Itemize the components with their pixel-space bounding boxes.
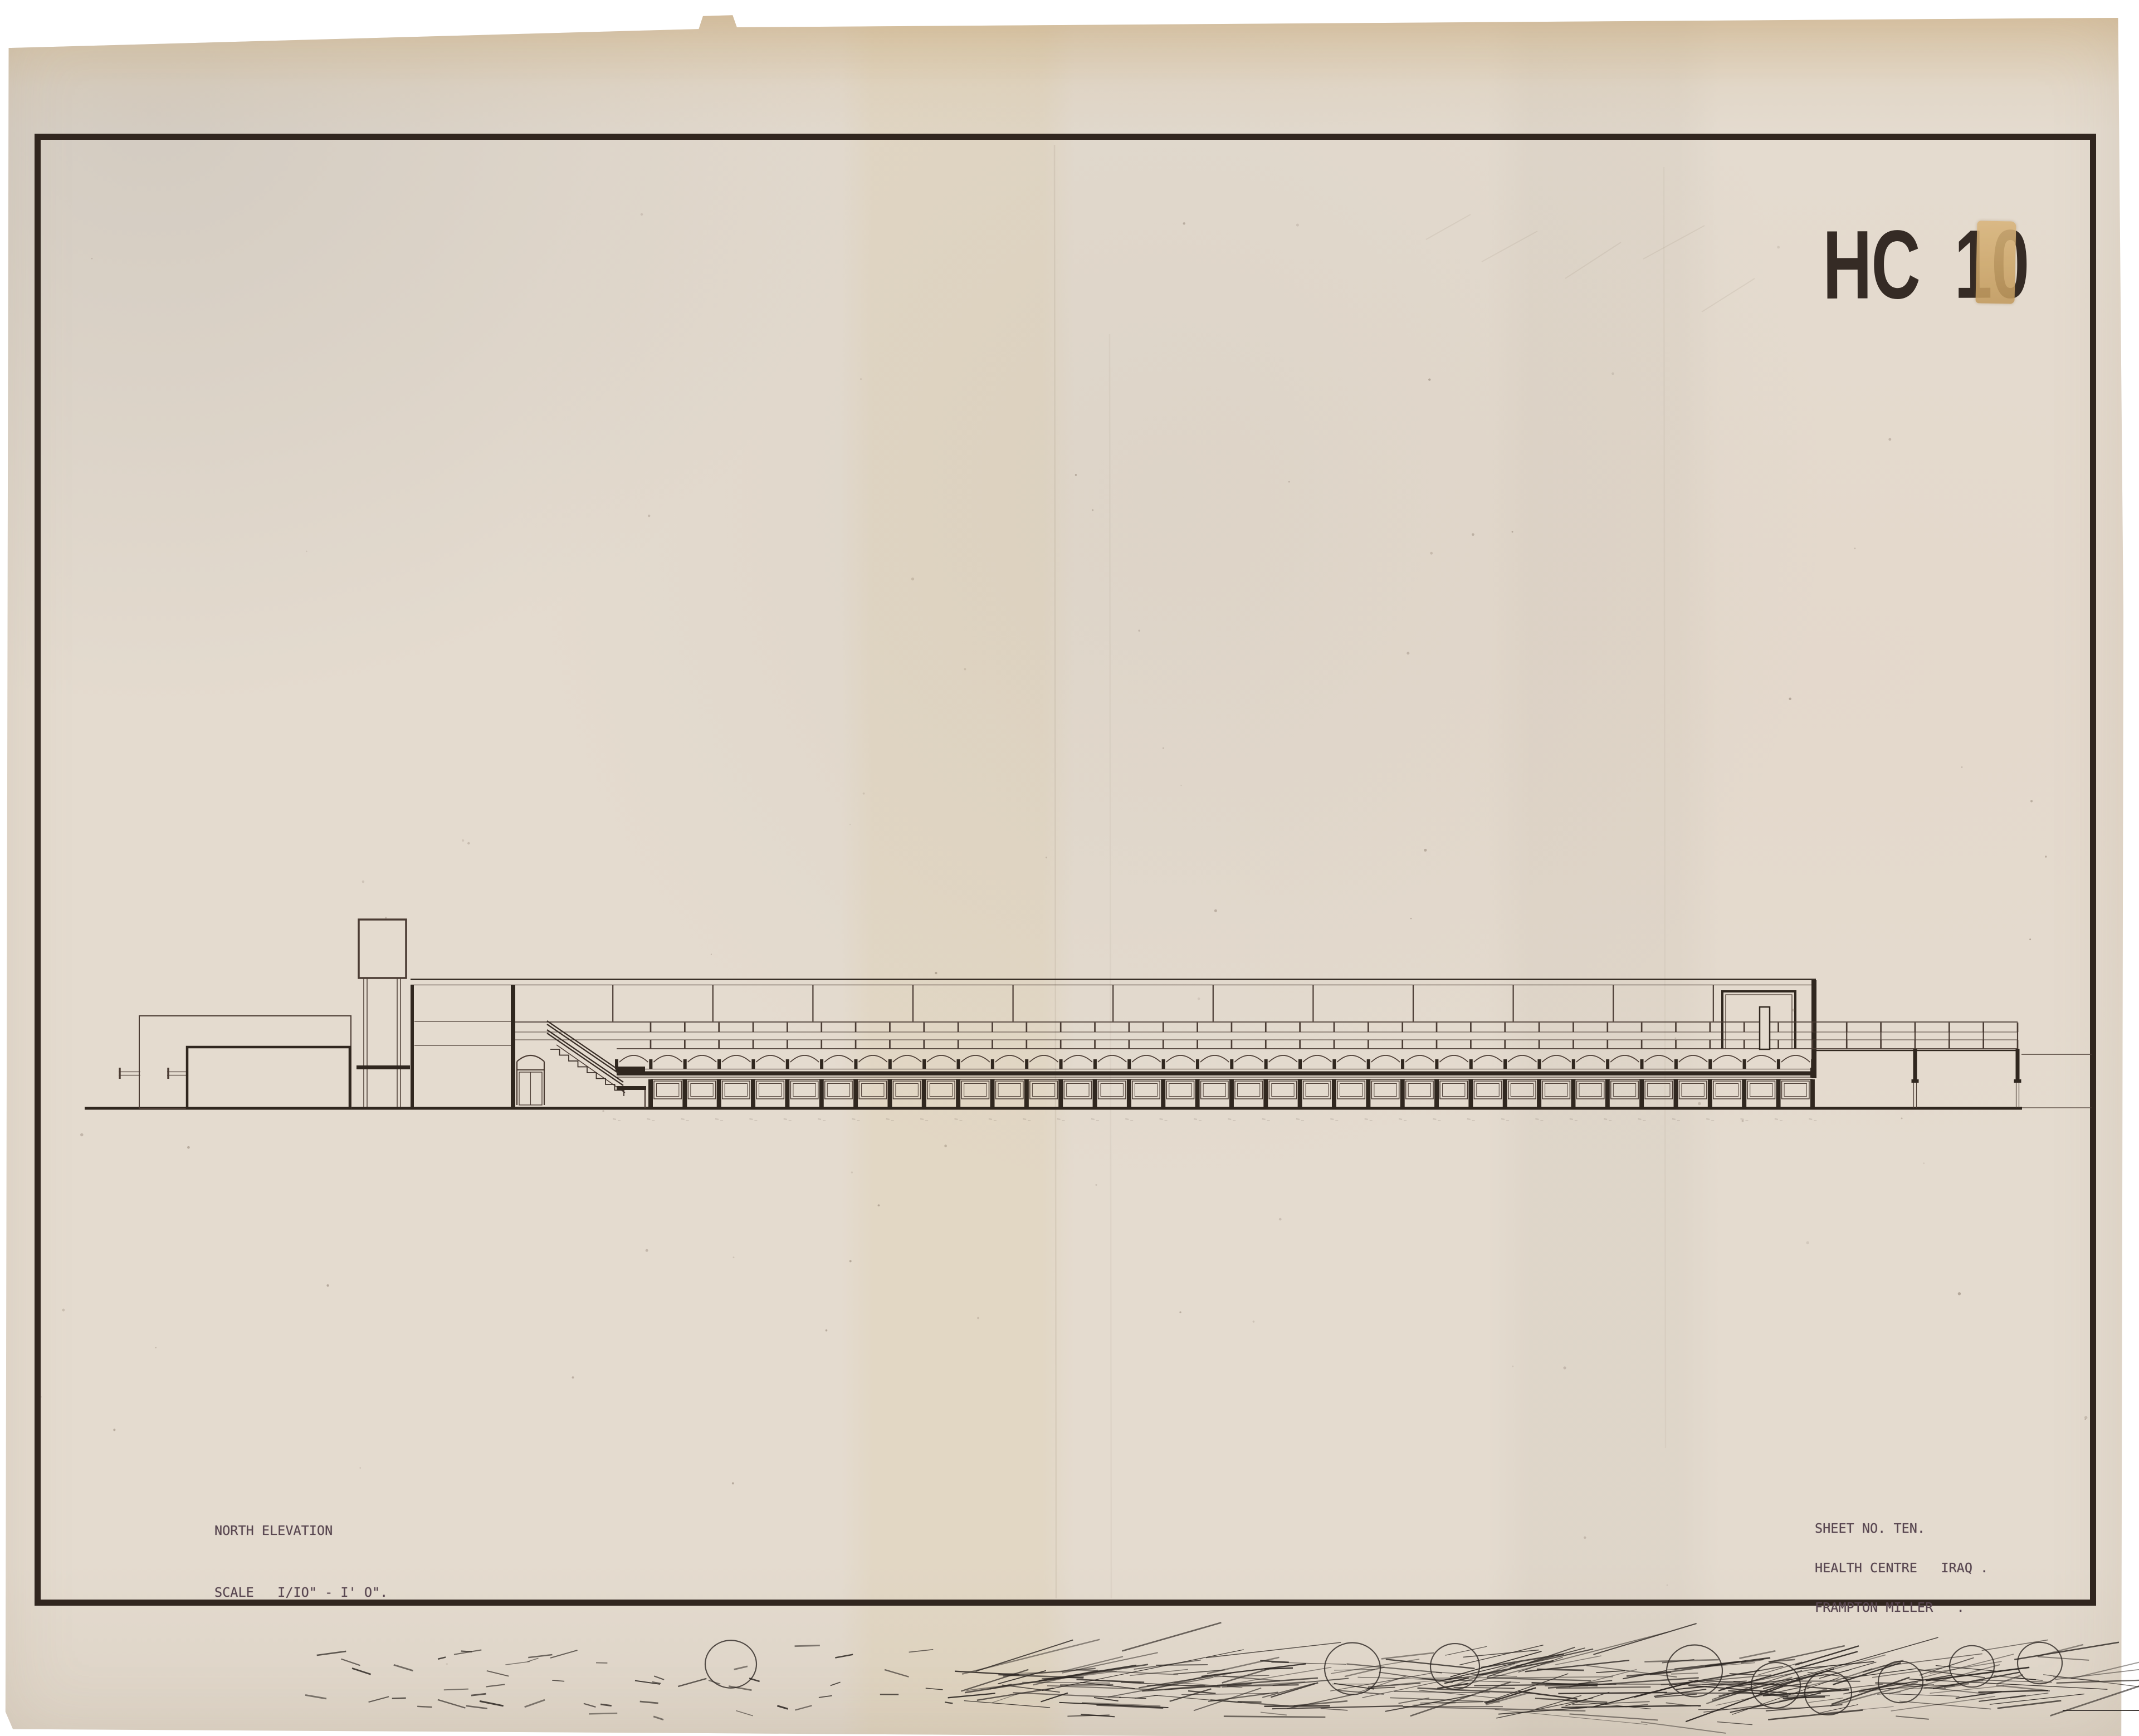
dust-specks bbox=[41, 213, 2087, 1665]
architect-name-line: FRAMPTON MILLER . bbox=[1815, 1601, 1988, 1615]
scanned-drawing-sheet: HC 10 NORTH ELEVATION SCALE I/IO" - I' O… bbox=[0, 0, 2139, 1736]
title-block-right: SHEET NO. TEN. HEALTH CENTRE IRAQ . FRAM… bbox=[1815, 1496, 1988, 1641]
paper-creases bbox=[1054, 145, 1755, 1598]
drawing-title: NORTH ELEVATION bbox=[214, 1520, 388, 1541]
title-block-left: NORTH ELEVATION SCALE I/IO" - I' O". bbox=[214, 1479, 388, 1644]
project-name-line: HEALTH CENTRE IRAQ . bbox=[1815, 1562, 1988, 1575]
setting-out-ticks bbox=[613, 1119, 1816, 1121]
tape-patch bbox=[1975, 221, 2016, 304]
elevation-drawing bbox=[0, 0, 2139, 1736]
sheet-number-line: SHEET NO. TEN. bbox=[1815, 1522, 1988, 1535]
drawing-scale: SCALE I/IO" - I' O". bbox=[214, 1582, 388, 1603]
north-elevation bbox=[85, 920, 2092, 1108]
border-frame bbox=[38, 137, 2093, 1603]
